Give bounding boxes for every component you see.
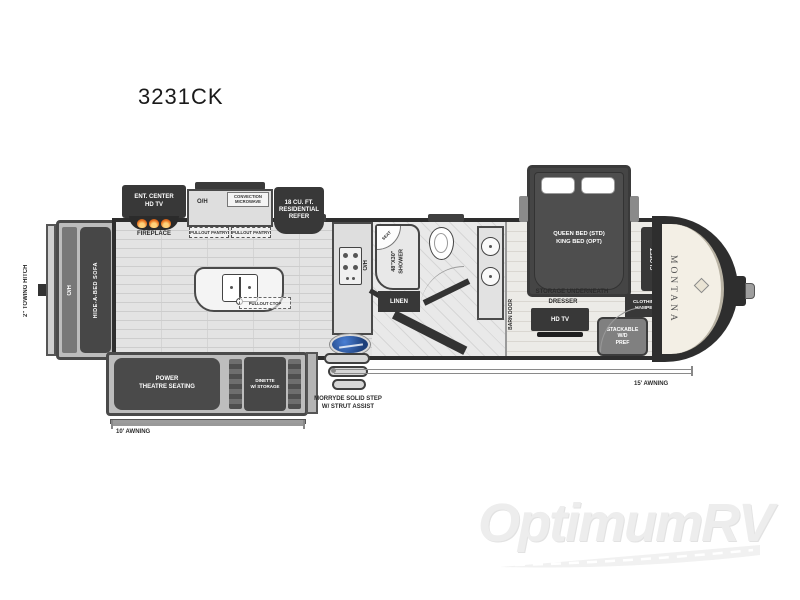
tv-screen-icon bbox=[537, 332, 583, 337]
pullout-pantry-right: PULLOUT PANTRY bbox=[231, 227, 271, 238]
montana-diamond-icon bbox=[694, 278, 710, 294]
theatre-seating: POWER THEATRE SEATING bbox=[114, 358, 220, 410]
window-icon bbox=[428, 214, 464, 222]
dinette-bench bbox=[229, 359, 242, 409]
awning-right-label: 15' AWNING bbox=[634, 381, 668, 387]
counter-overhead-label: O/H bbox=[363, 260, 369, 271]
rear-overhead-label: O/H bbox=[67, 285, 73, 296]
entertainment-center: ENT. CENTER HD TV bbox=[122, 185, 186, 218]
microwave-label: CONVECTION MICROWAVE bbox=[234, 195, 262, 204]
awning-right-line bbox=[334, 369, 692, 374]
towing-hitch-label: 2" TOWING HITCH bbox=[20, 236, 32, 346]
queen-king-bed: QUEEN BED (STD) KING BED (OPT) bbox=[534, 172, 624, 290]
pillow-icon bbox=[581, 177, 615, 194]
flame-icon bbox=[161, 219, 171, 228]
bed-label: QUEEN BED (STD) KING BED (OPT) bbox=[535, 231, 623, 246]
fireplace-icon bbox=[129, 216, 179, 230]
entry-step bbox=[324, 353, 370, 364]
montana-brand-label: MONTANA bbox=[668, 255, 678, 324]
barn-door-label: BARN DOOR bbox=[508, 299, 514, 330]
step-brand-badge bbox=[330, 334, 370, 355]
theatre-label: POWER THEATRE SEATING bbox=[139, 376, 195, 392]
vanity-sink-icon bbox=[481, 237, 500, 256]
pullout-pantry-left: PULLOUT PANTRY bbox=[189, 227, 229, 238]
range-cooktop-icon bbox=[339, 247, 362, 285]
refrigerator-label: 18 CU. FT. RESIDENTIAL REFER bbox=[279, 200, 319, 222]
floorplan-page: 3231CK 2" TOWING HITCH O/H HIDE-A-BED SO… bbox=[0, 0, 800, 600]
shower-label: 48"X30" SHOWER bbox=[391, 249, 406, 274]
entertainment-center-label: ENT. CENTER HD TV bbox=[134, 194, 173, 209]
step-label: MORRYDE SOLID STEP W/ STRUT ASSIST bbox=[290, 395, 406, 412]
bed-storage-label: STORAGE UNDERNEATH bbox=[514, 289, 630, 295]
counter-overhead: O/H bbox=[361, 250, 371, 280]
rear-bumper bbox=[46, 224, 56, 356]
awning-end-tick bbox=[691, 366, 693, 376]
dinette-label: DINETTE W/ STORAGE bbox=[251, 378, 280, 390]
vanity-sink-icon bbox=[481, 267, 500, 286]
pillow-icon bbox=[541, 177, 575, 194]
slide-rail bbox=[519, 196, 528, 222]
tv-label: HD TV bbox=[551, 317, 569, 323]
convection-microwave: CONVECTION MICROWAVE bbox=[227, 192, 269, 207]
flame-icon bbox=[149, 219, 159, 228]
awning-left-line bbox=[112, 423, 304, 426]
slide-rail bbox=[630, 196, 639, 222]
flame-icon bbox=[137, 219, 147, 228]
pullout-countertop: PULLOUT CTOP bbox=[239, 297, 291, 309]
hide-a-bed-sofa: HIDE-A-BED SOFA bbox=[80, 227, 111, 353]
dinette-table: DINETTE W/ STORAGE bbox=[244, 357, 286, 411]
sofa-label: HIDE-A-BED SOFA bbox=[93, 262, 99, 318]
awning-end-tick bbox=[111, 420, 113, 429]
linen-label: LINEN bbox=[390, 299, 408, 305]
watermark-road-graphic bbox=[495, 543, 765, 571]
fireplace-label: FIREPLACE bbox=[124, 231, 184, 237]
linen-closet: LINEN bbox=[378, 291, 420, 312]
dresser-tv: HD TV bbox=[531, 308, 589, 331]
awning-left-label: 10' AWNING bbox=[116, 429, 150, 435]
kingpin-icon bbox=[745, 283, 755, 299]
rear-overhead-cabinet: O/H bbox=[62, 227, 77, 353]
entry-step bbox=[332, 379, 366, 390]
hitch-receiver-icon bbox=[38, 284, 46, 296]
refrigerator: 18 CU. FT. RESIDENTIAL REFER bbox=[274, 187, 324, 234]
shower-label-wrap: 48"X30" SHOWER bbox=[386, 234, 412, 288]
awning-hook bbox=[331, 368, 336, 373]
kitchen-overhead-label: O/H bbox=[197, 199, 208, 205]
awning-end-tick bbox=[303, 420, 305, 429]
page-title: 3231CK bbox=[138, 84, 224, 110]
dresser-label: DRESSER bbox=[533, 299, 593, 305]
